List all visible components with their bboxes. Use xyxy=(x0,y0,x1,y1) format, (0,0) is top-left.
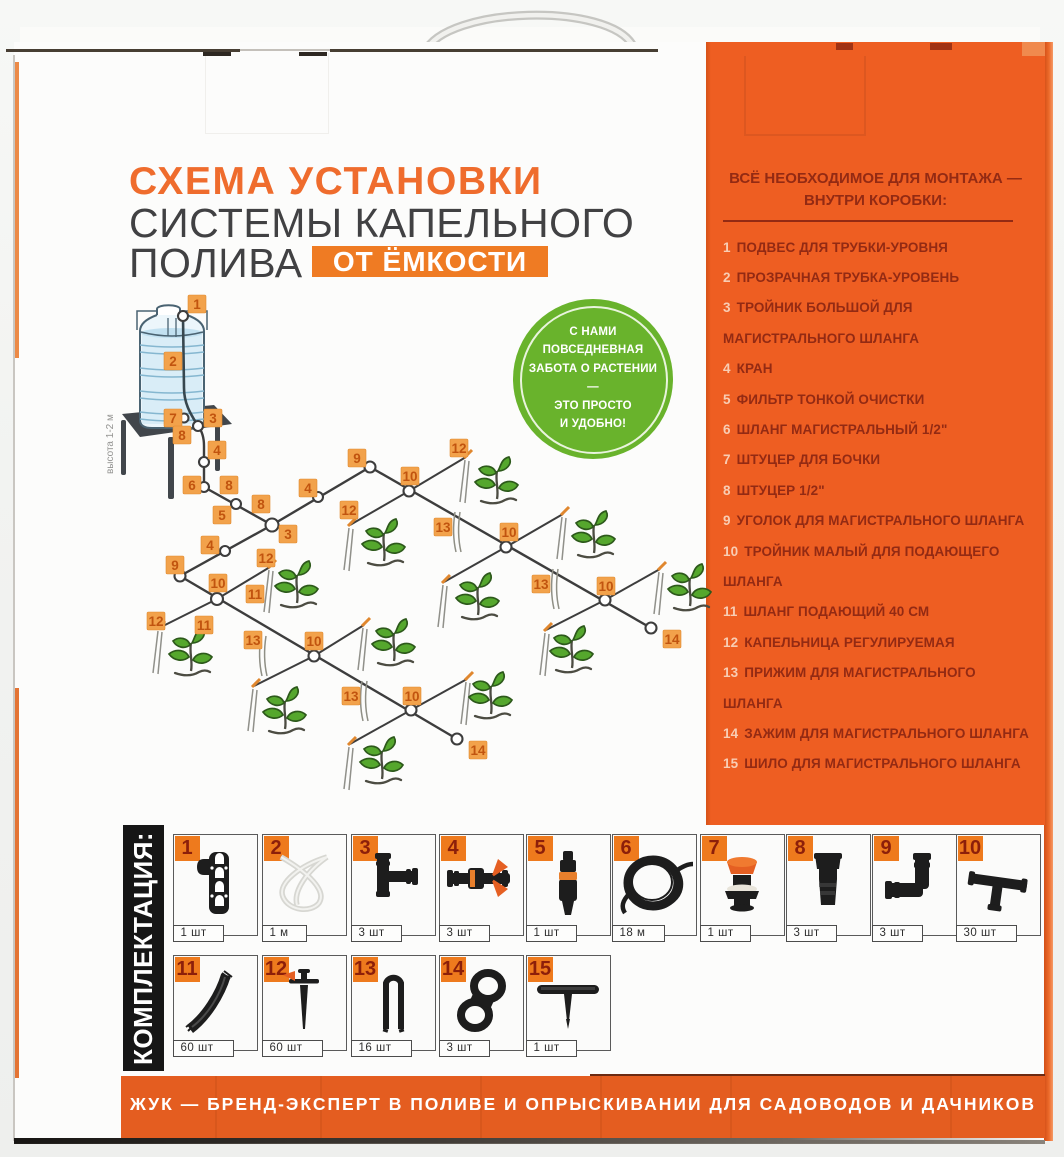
svg-text:11: 11 xyxy=(248,587,263,602)
svg-text:10: 10 xyxy=(210,576,225,591)
svg-text:12: 12 xyxy=(148,614,163,629)
svg-text:12: 12 xyxy=(258,551,273,566)
svg-text:9: 9 xyxy=(171,558,179,573)
svg-text:13: 13 xyxy=(533,577,549,592)
svg-text:13: 13 xyxy=(343,689,359,704)
svg-text:12: 12 xyxy=(451,441,466,456)
svg-text:4: 4 xyxy=(304,481,312,496)
svg-text:14: 14 xyxy=(470,743,486,758)
svg-text:3: 3 xyxy=(284,527,292,542)
svg-text:6: 6 xyxy=(188,478,196,493)
svg-text:13: 13 xyxy=(435,520,451,535)
svg-text:2: 2 xyxy=(169,354,177,369)
svg-text:12: 12 xyxy=(341,503,356,518)
svg-text:9: 9 xyxy=(353,451,361,466)
svg-text:высота 1-2 м: высота 1-2 м xyxy=(105,414,116,474)
svg-text:5: 5 xyxy=(218,508,226,523)
svg-text:10: 10 xyxy=(598,579,613,594)
svg-text:7: 7 xyxy=(169,411,177,426)
svg-text:11: 11 xyxy=(197,618,212,633)
svg-text:4: 4 xyxy=(213,443,221,458)
svg-text:3: 3 xyxy=(209,411,217,426)
svg-text:8: 8 xyxy=(257,497,265,512)
svg-text:10: 10 xyxy=(402,469,417,484)
svg-text:4: 4 xyxy=(206,538,214,553)
svg-text:10: 10 xyxy=(404,689,419,704)
svg-text:10: 10 xyxy=(306,634,321,649)
svg-text:8: 8 xyxy=(225,478,233,493)
svg-text:14: 14 xyxy=(664,632,680,647)
svg-text:8: 8 xyxy=(178,428,186,443)
svg-text:1: 1 xyxy=(193,297,201,312)
svg-text:10: 10 xyxy=(501,525,516,540)
svg-text:13: 13 xyxy=(245,633,261,648)
